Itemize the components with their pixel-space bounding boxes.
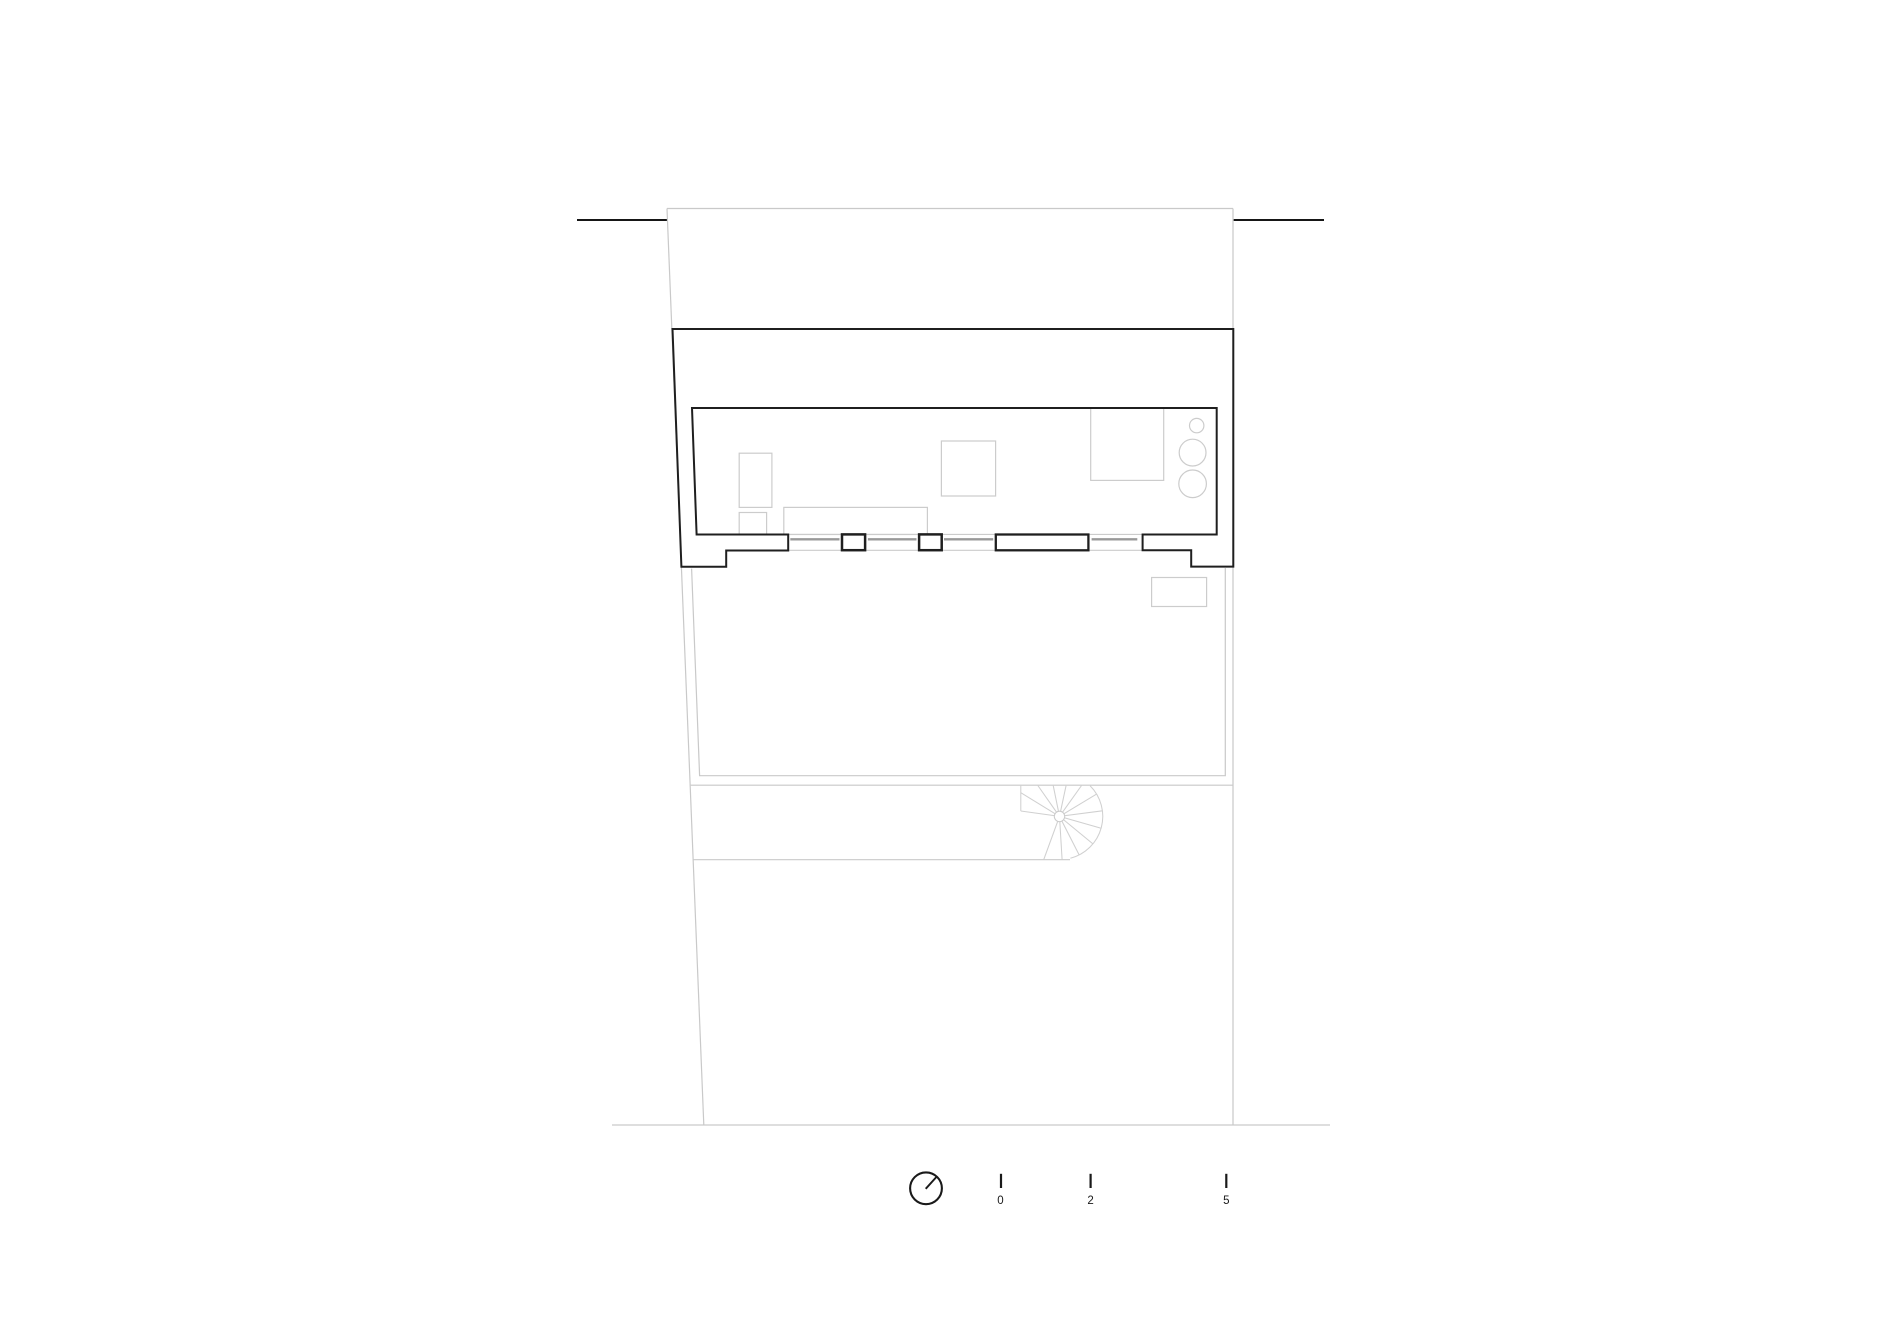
svg-text:5: 5 — [1223, 1195, 1229, 1207]
svg-text:0: 0 — [997, 1195, 1003, 1207]
svg-text:2: 2 — [1087, 1195, 1093, 1207]
